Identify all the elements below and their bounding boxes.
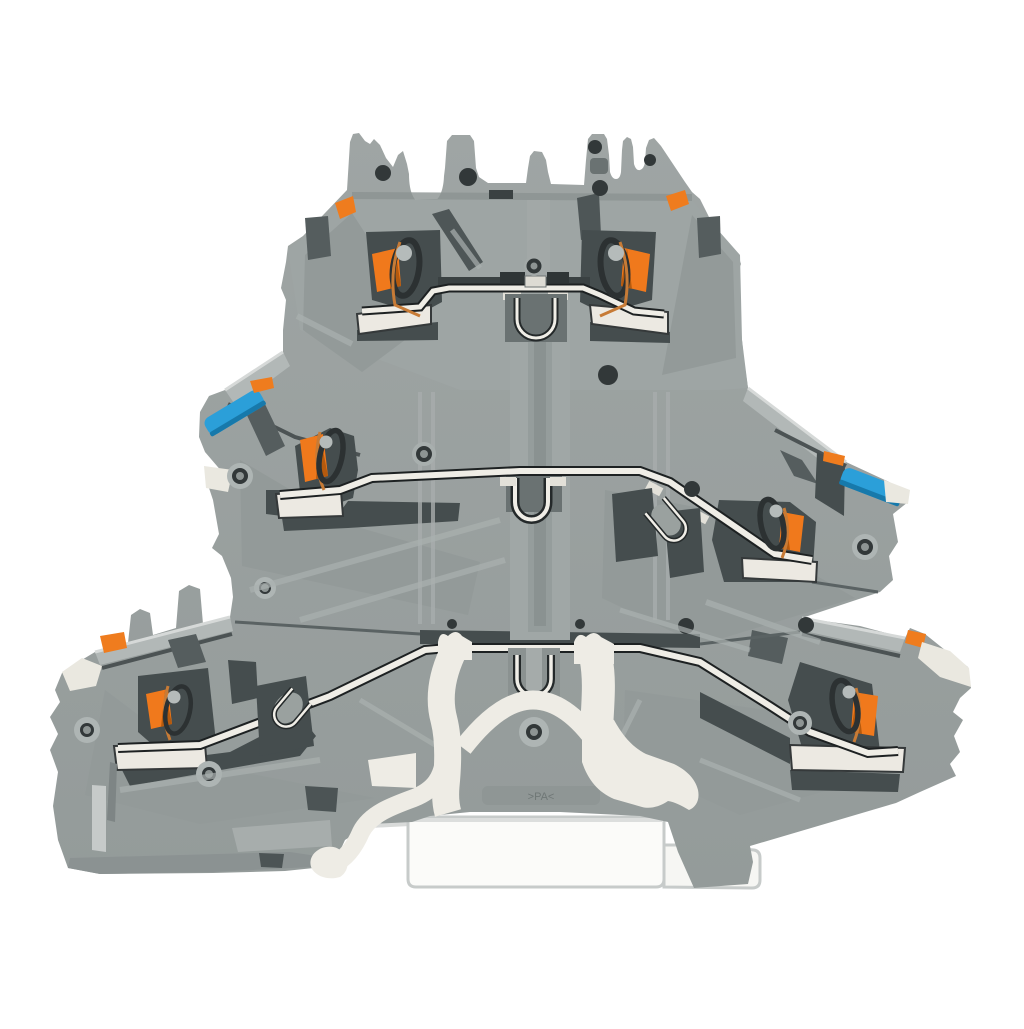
svg-text:>PA<: >PA< [528,791,555,803]
